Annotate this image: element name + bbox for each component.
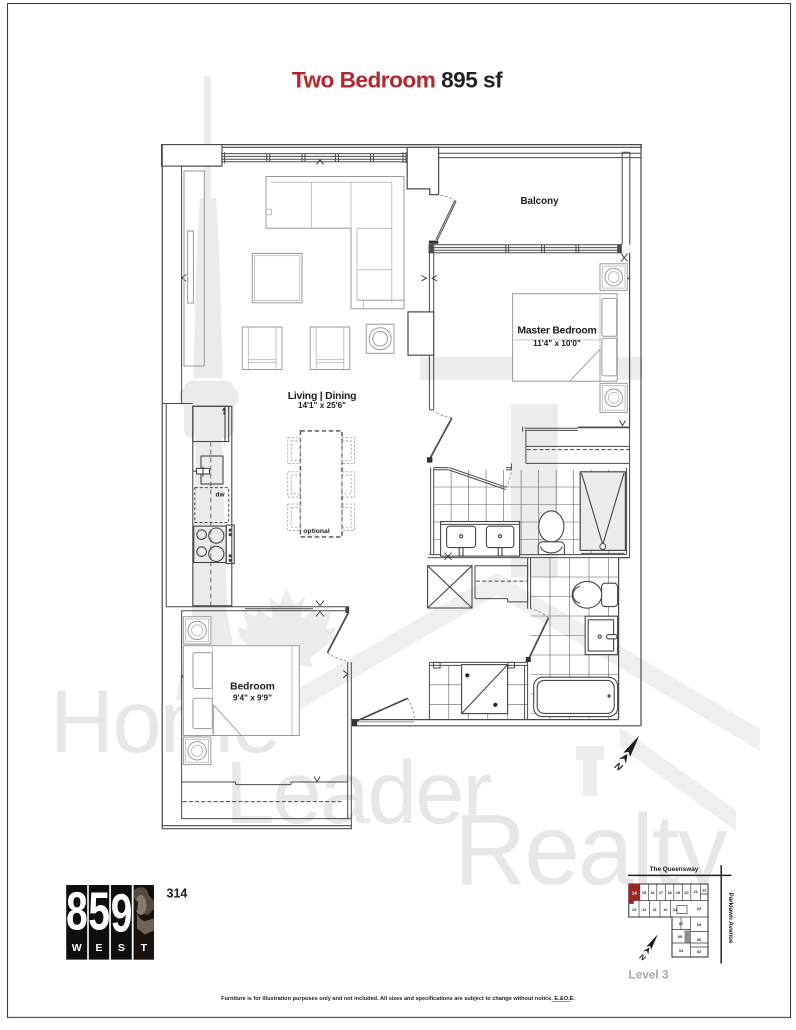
svg-text:dw: dw <box>215 492 225 499</box>
svg-text:Leader: Leader <box>225 742 491 842</box>
svg-text:11'4" x 10'0": 11'4" x 10'0" <box>533 339 581 348</box>
svg-text:9'4" x 9'9": 9'4" x 9'9" <box>233 694 272 703</box>
svg-text:W: W <box>72 942 82 954</box>
svg-text:20: 20 <box>684 891 688 895</box>
svg-text:Level 3: Level 3 <box>629 968 669 982</box>
svg-text:10: 10 <box>663 908 667 912</box>
svg-text:14'1" x 25'6": 14'1" x 25'6" <box>298 401 346 410</box>
svg-text:Two Bedroom 895 sf: Two Bedroom 895 sf <box>292 68 503 93</box>
svg-text:03: 03 <box>679 949 683 953</box>
svg-text:The Queensway: The Queensway <box>650 866 699 873</box>
svg-text:17: 17 <box>659 891 663 895</box>
svg-text:18: 18 <box>667 891 671 895</box>
svg-text:T: T <box>141 942 148 954</box>
svg-text:N: N <box>638 952 648 963</box>
svg-text:05: 05 <box>678 935 682 939</box>
svg-text:16: 16 <box>650 891 654 895</box>
svg-text:22: 22 <box>702 889 706 893</box>
svg-text:07: 07 <box>679 922 683 926</box>
svg-text:23: 23 <box>697 907 701 911</box>
svg-text:9: 9 <box>111 882 133 943</box>
svg-text:Parklawn Avenue: Parklawn Avenue <box>727 893 734 944</box>
svg-text:15: 15 <box>642 891 646 895</box>
svg-text:E: E <box>95 942 102 954</box>
svg-text:02: 02 <box>697 950 701 954</box>
svg-text:S: S <box>118 942 125 954</box>
svg-text:5: 5 <box>88 880 110 941</box>
svg-text:06: 06 <box>697 938 701 942</box>
svg-text:optional: optional <box>303 528 330 535</box>
svg-text:19: 19 <box>676 891 680 895</box>
svg-text:13: 13 <box>632 908 636 912</box>
svg-text:Balcony: Balcony <box>520 196 559 207</box>
svg-text:11: 11 <box>653 908 657 912</box>
svg-text:Furniture is for illustration: Furniture is for illustration purposes o… <box>221 996 575 1002</box>
svg-text:Master Bedroom: Master Bedroom <box>517 326 596 337</box>
svg-text:21: 21 <box>693 890 697 894</box>
svg-text:14: 14 <box>632 891 638 896</box>
svg-text:12: 12 <box>642 908 646 912</box>
svg-text:Bedroom: Bedroom <box>230 681 275 692</box>
svg-text:N: N <box>612 761 625 775</box>
svg-text:8: 8 <box>66 880 88 941</box>
svg-text:314: 314 <box>167 887 188 901</box>
